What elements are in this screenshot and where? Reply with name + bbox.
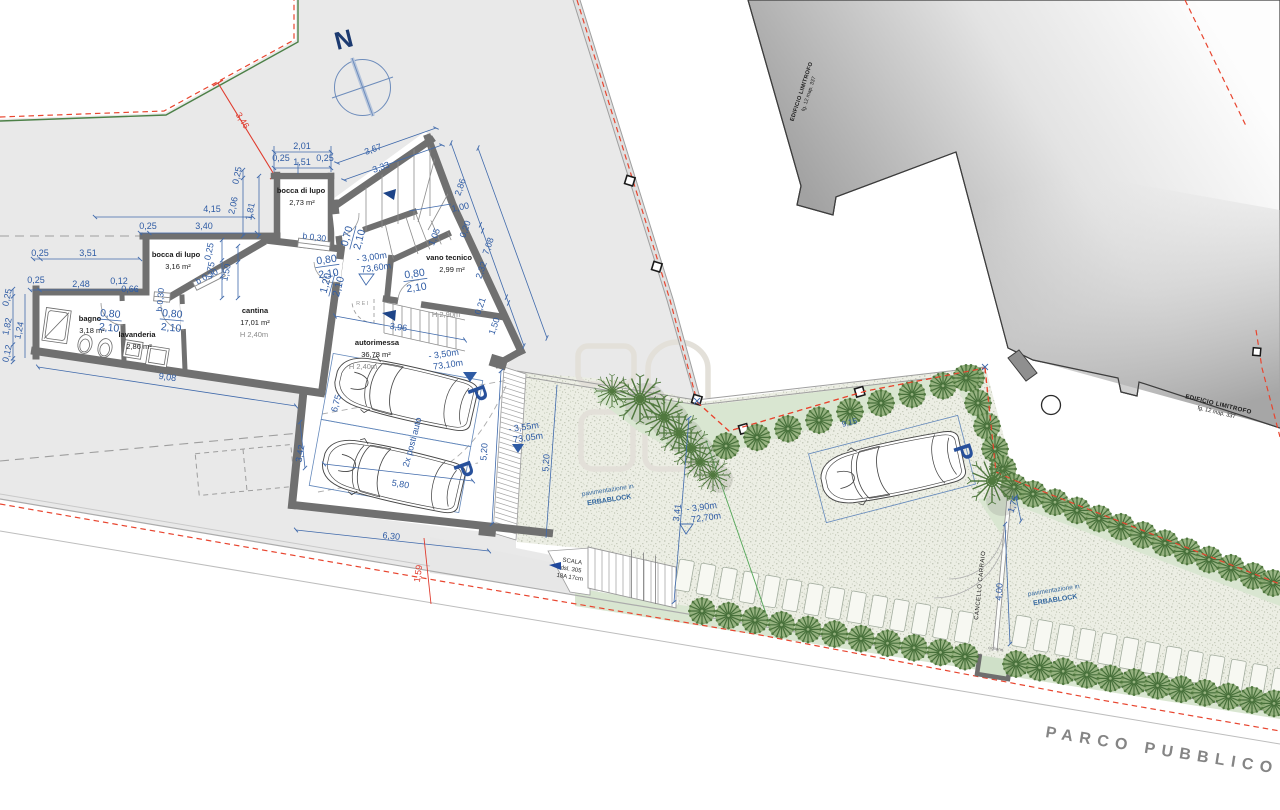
svg-text:vano tecnico: vano tecnico (426, 253, 472, 262)
svg-text:3,41: 3,41 (671, 503, 683, 522)
svg-text:bagno: bagno (79, 314, 102, 323)
svg-text:4,15: 4,15 (203, 204, 221, 214)
svg-text:0,80: 0,80 (100, 307, 122, 321)
svg-text:H 2,40m: H 2,40m (240, 330, 268, 339)
svg-text:H 2,90m: H 2,90m (432, 310, 460, 319)
svg-text:2,73 m²: 2,73 m² (289, 198, 315, 207)
svg-text:0,25: 0,25 (139, 221, 157, 231)
svg-text:bocca di lupo: bocca di lupo (277, 186, 326, 195)
svg-text:0,25: 0,25 (27, 275, 45, 285)
svg-text:autorimessa: autorimessa (355, 338, 400, 347)
svg-text:lavanderia: lavanderia (118, 330, 156, 339)
svg-text:2,10: 2,10 (160, 321, 182, 335)
svg-text:0,66: 0,66 (121, 284, 139, 294)
svg-text:1,51: 1,51 (293, 157, 311, 167)
svg-text:6,30: 6,30 (382, 530, 400, 542)
svg-text:2,01: 2,01 (293, 141, 311, 151)
svg-text:3,51: 3,51 (79, 248, 97, 258)
svg-text:0,25: 0,25 (272, 153, 290, 163)
svg-text:2,99 m²: 2,99 m² (439, 265, 465, 274)
svg-text:3,40: 3,40 (195, 221, 213, 231)
svg-text:bocca di lupo: bocca di lupo (152, 250, 201, 259)
svg-text:2,48: 2,48 (72, 279, 90, 289)
svg-text:H 2,40m: H 2,40m (349, 362, 377, 371)
svg-text:2,86 m²: 2,86 m² (126, 342, 152, 351)
svg-text:REI: REI (356, 301, 370, 307)
svg-text:36,78 m²: 36,78 m² (361, 350, 391, 359)
svg-text:5,20: 5,20 (540, 454, 551, 472)
svg-text:cantina: cantina (242, 306, 269, 315)
svg-text:b 0,30: b 0,30 (154, 287, 166, 312)
svg-text:0,25: 0,25 (31, 248, 49, 258)
svg-text:17,01 m²: 17,01 m² (240, 318, 270, 327)
svg-text:4,00: 4,00 (993, 583, 1004, 601)
svg-text:0,25: 0,25 (316, 153, 334, 163)
svg-text:5,20: 5,20 (478, 443, 489, 461)
svg-text:2,10: 2,10 (98, 321, 120, 335)
svg-text:3,16 m²: 3,16 m² (165, 262, 191, 271)
svg-text:0,80: 0,80 (162, 307, 184, 321)
